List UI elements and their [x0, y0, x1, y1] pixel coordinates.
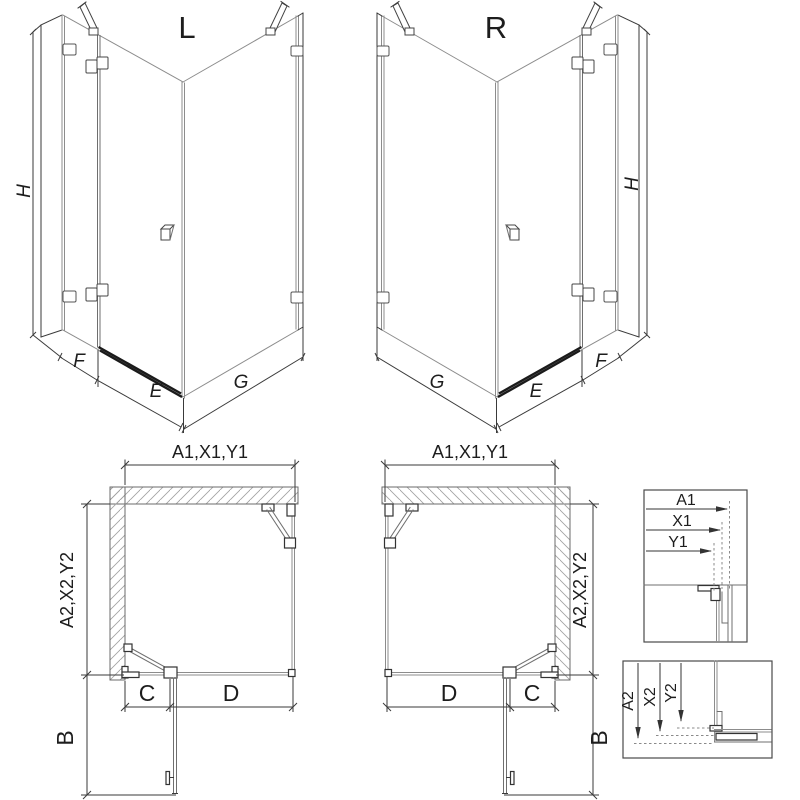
drawing-canvas: L H F E G R H F E G A1,X1,Y1 A2,X2,Y2 C …	[0, 0, 800, 800]
plan-left-linework	[81, 460, 299, 800]
detail-inset-depth: A2 X2 Y2	[620, 661, 772, 758]
detail-label-y2: Y2	[663, 683, 680, 703]
detail-inset-width: A1 X1 Y1	[644, 490, 747, 642]
dim-label-f: F	[73, 351, 86, 372]
detail-label-a1: A1	[676, 492, 696, 509]
iso-left-linework	[30, 2, 305, 434]
dim-label-a1x1y1: A1,X1,Y1	[432, 442, 508, 462]
view-label-left: L	[178, 10, 195, 45]
dim-label-d: D	[223, 680, 240, 706]
dim-label-a2x2y2: A2,X2,Y2	[570, 552, 590, 628]
dim-label-f: F	[595, 351, 608, 372]
iso-view-left: L H F E G	[14, 2, 305, 434]
dim-label-h: H	[14, 184, 35, 198]
dim-label-c: C	[139, 680, 156, 706]
detail-label-x2: X2	[642, 687, 659, 707]
dim-label-b: B	[52, 730, 78, 745]
shower-enclosure-technical-drawing: L H F E G R H F E G A1,X1,Y1 A2,X2,Y2 C …	[0, 0, 800, 800]
detail-label-y1: Y1	[668, 534, 688, 551]
detail-label-a2: A2	[620, 691, 637, 711]
dim-label-e: E	[530, 381, 543, 402]
detail-label-x1: X1	[672, 513, 692, 530]
dim-label-a2x2y2: A2,X2,Y2	[57, 552, 77, 628]
plan-view-right: A1,X1,Y1 A2,X2,Y2 D C B	[381, 442, 612, 799]
dim-label-g: G	[234, 372, 249, 393]
dim-label-b: B	[586, 730, 612, 745]
dim-label-d: D	[441, 680, 458, 706]
iso-right-linework	[375, 2, 650, 434]
dim-label-e: E	[150, 381, 163, 402]
dim-label-g: G	[430, 372, 445, 393]
plan-right-linework	[381, 460, 599, 800]
plan-view-left: A1,X1,Y1 A2,X2,Y2 C D B	[52, 442, 299, 799]
view-label-right: R	[485, 10, 507, 45]
dim-label-c: C	[524, 680, 541, 706]
dim-label-h: H	[622, 177, 643, 191]
iso-view-right: R H F E G	[375, 2, 650, 434]
dim-label-a1x1y1: A1,X1,Y1	[172, 442, 248, 462]
